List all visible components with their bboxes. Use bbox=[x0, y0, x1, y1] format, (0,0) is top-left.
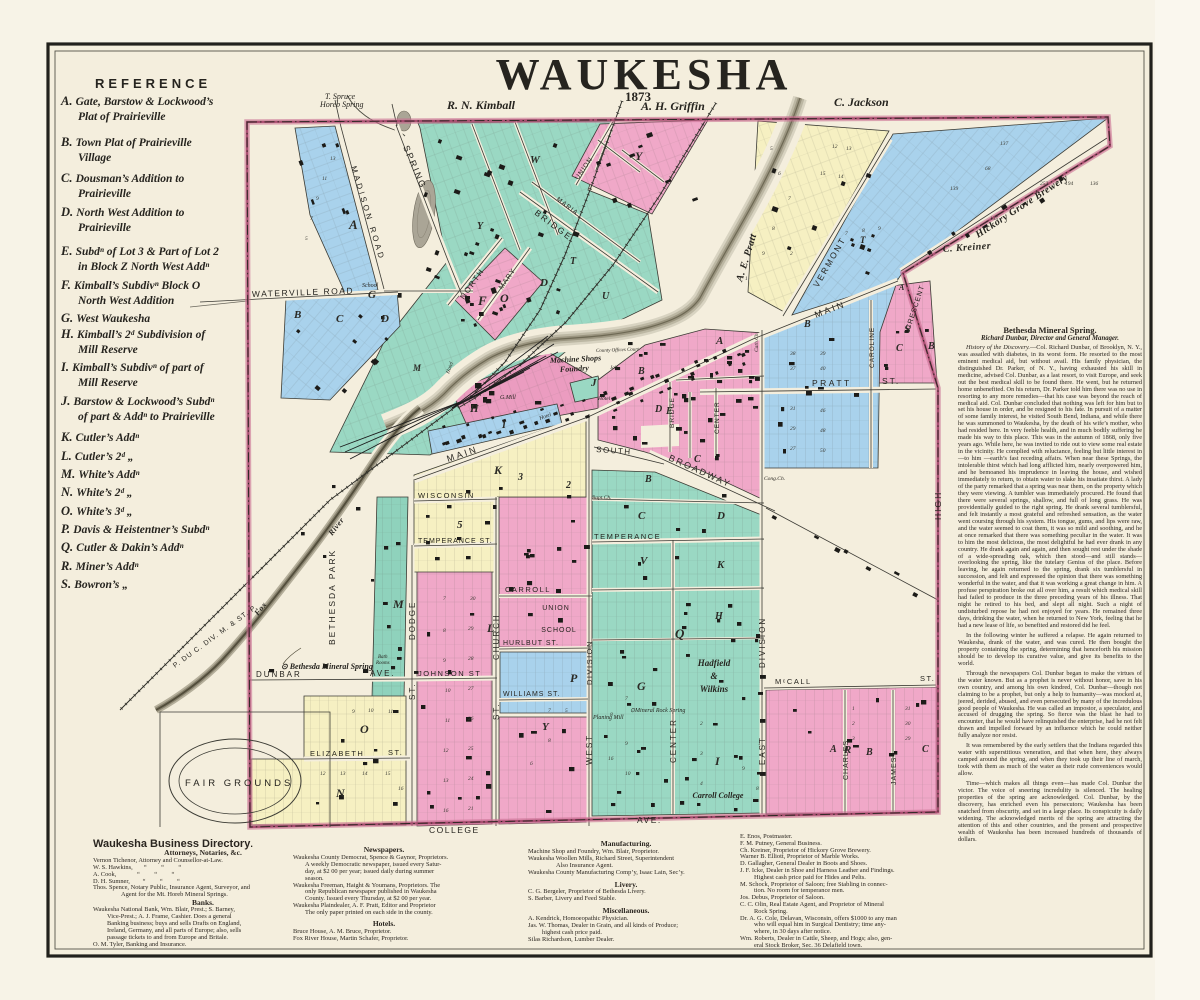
svg-text:136: 136 bbox=[1090, 181, 1099, 187]
svg-text:9: 9 bbox=[742, 766, 745, 772]
svg-text:CENTER: CENTER bbox=[714, 401, 721, 434]
svg-text:139: 139 bbox=[950, 186, 959, 192]
svg-text:25: 25 bbox=[468, 746, 474, 752]
svg-text:27: 27 bbox=[468, 686, 474, 692]
svg-text:B: B bbox=[293, 309, 301, 321]
svg-text:HIGH: HIGH bbox=[933, 491, 943, 520]
svg-text:JOHNSON ST: JOHNSON ST bbox=[418, 669, 481, 678]
svg-text:11: 11 bbox=[445, 718, 450, 724]
svg-text:Cong.Ch.: Cong.Ch. bbox=[764, 476, 785, 482]
svg-text:D: D bbox=[716, 510, 725, 522]
svg-text:T: T bbox=[860, 235, 866, 245]
svg-text:DUNBAR: DUNBAR bbox=[256, 670, 302, 679]
svg-text:⊙ Bethesda Mineral Spring: ⊙ Bethesda Mineral Spring bbox=[281, 662, 373, 671]
svg-text:3: 3 bbox=[699, 751, 703, 757]
svg-text:8: 8 bbox=[610, 712, 613, 718]
svg-text:Hadfield: Hadfield bbox=[697, 658, 731, 668]
svg-text:11: 11 bbox=[388, 709, 393, 715]
svg-text:J: J bbox=[590, 377, 597, 389]
svg-text:9: 9 bbox=[316, 196, 319, 202]
svg-text:16: 16 bbox=[608, 756, 614, 762]
svg-text:14: 14 bbox=[362, 770, 368, 777]
svg-text:A. H. Griffin: A. H. Griffin bbox=[640, 99, 705, 113]
svg-text:10: 10 bbox=[445, 688, 451, 694]
svg-text:7: 7 bbox=[788, 196, 791, 202]
svg-text:JAMES: JAMES bbox=[891, 757, 898, 785]
svg-text:Q: Q bbox=[675, 626, 685, 641]
svg-text:21: 21 bbox=[468, 806, 474, 812]
svg-text:7: 7 bbox=[548, 708, 551, 714]
svg-text:2: 2 bbox=[852, 721, 855, 727]
svg-text:S: S bbox=[904, 322, 911, 336]
svg-text:1: 1 bbox=[852, 706, 855, 712]
svg-text:D: D bbox=[380, 313, 389, 325]
svg-text:31: 31 bbox=[904, 706, 911, 712]
svg-text:FAIR GROUNDS: FAIR GROUNDS bbox=[185, 778, 293, 789]
svg-text:Carroll College: Carroll College bbox=[693, 791, 744, 800]
svg-text:68: 68 bbox=[985, 166, 991, 172]
svg-text:F: F bbox=[477, 293, 487, 308]
svg-text:1: 1 bbox=[758, 741, 761, 747]
svg-text:B: B bbox=[637, 366, 645, 377]
svg-text:Cath.Ch.: Cath.Ch. bbox=[754, 332, 760, 352]
svg-text:39: 39 bbox=[819, 351, 826, 357]
svg-text:26: 26 bbox=[468, 716, 474, 722]
svg-text:38: 38 bbox=[789, 351, 796, 357]
svg-text:PRATT: PRATT bbox=[812, 378, 852, 388]
svg-text:A: A bbox=[829, 744, 837, 755]
svg-text:CARROLL: CARROLL bbox=[505, 585, 551, 594]
svg-text:DODGE: DODGE bbox=[408, 601, 417, 640]
svg-text:K: K bbox=[493, 463, 503, 477]
svg-text:12: 12 bbox=[320, 771, 326, 777]
svg-text:H: H bbox=[469, 403, 479, 415]
svg-text:194: 194 bbox=[1065, 180, 1074, 187]
svg-text:G: G bbox=[368, 289, 376, 301]
svg-text:Bapt.Ch.: Bapt.Ch. bbox=[592, 495, 612, 501]
svg-text:Rooms: Rooms bbox=[375, 661, 390, 666]
svg-text:135: 135 bbox=[990, 216, 999, 222]
svg-text:C: C bbox=[638, 510, 646, 522]
svg-text:7: 7 bbox=[845, 231, 848, 237]
svg-text:AVE.: AVE. bbox=[637, 815, 662, 825]
svg-text:M: M bbox=[392, 597, 404, 611]
svg-text:28: 28 bbox=[468, 656, 474, 662]
svg-text:27: 27 bbox=[790, 446, 796, 452]
svg-text:G: G bbox=[637, 679, 646, 693]
svg-text:P: P bbox=[570, 671, 578, 685]
svg-text:WISCONSIN: WISCONSIN bbox=[418, 491, 475, 500]
svg-text:BETHESDA PARK: BETHESDA PARK bbox=[327, 549, 337, 645]
svg-text:137: 137 bbox=[1000, 141, 1009, 147]
svg-text:14: 14 bbox=[838, 173, 844, 180]
svg-text:R. N. Kimball: R. N. Kimball bbox=[446, 98, 516, 112]
svg-text:40: 40 bbox=[820, 365, 826, 372]
svg-text:29: 29 bbox=[468, 626, 474, 632]
svg-text:L: L bbox=[486, 621, 494, 635]
svg-text:E: E bbox=[665, 406, 673, 417]
svg-text:13: 13 bbox=[846, 146, 852, 152]
svg-text:5: 5 bbox=[770, 146, 773, 152]
svg-text:B: B bbox=[644, 474, 652, 485]
svg-text:9: 9 bbox=[878, 226, 881, 232]
svg-text:D: D bbox=[539, 277, 548, 289]
svg-text:C. Jackson: C. Jackson bbox=[834, 95, 889, 109]
svg-text:WEST: WEST bbox=[585, 734, 594, 765]
svg-text:C: C bbox=[896, 343, 903, 354]
svg-text:ST.: ST. bbox=[408, 682, 417, 700]
svg-text:&: & bbox=[710, 671, 717, 681]
svg-text:8: 8 bbox=[862, 228, 865, 234]
svg-text:1: 1 bbox=[745, 276, 748, 282]
svg-text:HURLBUT ST.: HURLBUT ST. bbox=[503, 640, 559, 647]
svg-text:ST.: ST. bbox=[920, 674, 935, 683]
svg-text:N: N bbox=[335, 786, 346, 800]
svg-text:8: 8 bbox=[772, 226, 775, 232]
svg-text:10: 10 bbox=[368, 708, 374, 714]
svg-text:3: 3 bbox=[517, 472, 523, 483]
svg-text:Bath: Bath bbox=[378, 655, 388, 660]
svg-text:31: 31 bbox=[789, 406, 796, 412]
svg-text:15: 15 bbox=[385, 771, 391, 777]
svg-text:B: B bbox=[865, 747, 873, 758]
svg-text:WILLIAMS ST.: WILLIAMS ST. bbox=[503, 691, 561, 698]
svg-text:29: 29 bbox=[905, 736, 911, 742]
svg-text:12: 12 bbox=[443, 748, 449, 754]
svg-text:ST.: ST. bbox=[882, 376, 900, 386]
svg-text:30: 30 bbox=[469, 596, 476, 602]
svg-text:5: 5 bbox=[457, 519, 463, 531]
svg-text:6: 6 bbox=[778, 171, 781, 177]
svg-text:DIVISION: DIVISION bbox=[585, 640, 594, 685]
svg-text:46: 46 bbox=[820, 407, 826, 414]
svg-text:O: O bbox=[360, 722, 369, 736]
svg-text:B: B bbox=[927, 341, 935, 352]
svg-text:K: K bbox=[716, 559, 725, 571]
svg-text:Hotel: Hotel bbox=[597, 396, 611, 402]
svg-text:10: 10 bbox=[625, 771, 631, 777]
svg-text:A: A bbox=[348, 217, 358, 232]
svg-text:48: 48 bbox=[820, 427, 826, 434]
svg-text:TEMPERANCE ST.: TEMPERANCE ST. bbox=[418, 538, 493, 545]
svg-text:2: 2 bbox=[790, 251, 793, 257]
svg-text:9: 9 bbox=[443, 658, 446, 664]
svg-text:⊙Mineral Rock Spring: ⊙Mineral Rock Spring bbox=[630, 708, 685, 714]
svg-text:UNION: UNION bbox=[542, 605, 570, 612]
svg-text:9: 9 bbox=[352, 709, 355, 715]
svg-text:CENTER: CENTER bbox=[669, 718, 678, 763]
svg-text:C: C bbox=[694, 454, 701, 465]
svg-text:Y: Y bbox=[477, 221, 484, 232]
svg-text:7: 7 bbox=[310, 216, 313, 222]
svg-text:3: 3 bbox=[851, 736, 855, 742]
svg-text:5: 5 bbox=[305, 236, 308, 242]
svg-text:16: 16 bbox=[398, 786, 404, 792]
svg-text:15: 15 bbox=[820, 171, 826, 177]
svg-text:6: 6 bbox=[530, 761, 533, 767]
svg-text:W: W bbox=[530, 154, 541, 166]
svg-text:5: 5 bbox=[565, 708, 568, 714]
svg-text:13: 13 bbox=[340, 771, 346, 777]
svg-text:9: 9 bbox=[625, 741, 628, 747]
svg-text:13: 13 bbox=[443, 778, 449, 784]
svg-text:7: 7 bbox=[443, 596, 446, 602]
svg-text:12: 12 bbox=[832, 144, 838, 150]
svg-text:T: T bbox=[570, 256, 577, 267]
svg-text:AVE.: AVE. bbox=[370, 669, 396, 678]
svg-text:A: A bbox=[898, 283, 905, 292]
svg-text:O: O bbox=[500, 291, 509, 305]
svg-text:29: 29 bbox=[790, 426, 796, 432]
svg-text:SCHOOL: SCHOOL bbox=[541, 627, 577, 634]
svg-text:COLLEGE: COLLEGE bbox=[429, 825, 480, 835]
svg-text:B: B bbox=[803, 319, 811, 330]
svg-text:H: H bbox=[714, 611, 724, 622]
svg-text:Jail: Jail bbox=[610, 366, 618, 371]
svg-text:TEMPERANCE: TEMPERANCE bbox=[594, 532, 661, 541]
svg-text:CAROLINE: CAROLINE bbox=[869, 327, 876, 368]
svg-text:8: 8 bbox=[756, 786, 759, 792]
svg-text:50: 50 bbox=[820, 448, 826, 454]
svg-text:A: A bbox=[715, 335, 723, 347]
svg-text:Planing Mill: Planing Mill bbox=[592, 715, 624, 721]
svg-text:4: 4 bbox=[700, 780, 703, 787]
svg-text:253: 253 bbox=[1040, 181, 1049, 187]
svg-text:M: M bbox=[412, 363, 422, 373]
svg-text:30: 30 bbox=[904, 721, 911, 727]
svg-text:2: 2 bbox=[700, 721, 703, 727]
svg-text:ELIZABETH: ELIZABETH bbox=[310, 749, 364, 758]
svg-text:MᶜCALL: MᶜCALL bbox=[775, 677, 812, 686]
svg-text:37: 37 bbox=[789, 366, 796, 372]
svg-text:13: 13 bbox=[330, 156, 336, 162]
svg-text:D: D bbox=[654, 404, 662, 415]
svg-text:C: C bbox=[336, 313, 344, 325]
svg-text:DIVISION: DIVISION bbox=[758, 617, 767, 668]
svg-text:7: 7 bbox=[625, 696, 628, 702]
svg-text:C: C bbox=[922, 744, 929, 755]
svg-text:ST.: ST. bbox=[388, 748, 403, 757]
svg-text:2: 2 bbox=[565, 480, 571, 491]
svg-text:8: 8 bbox=[548, 738, 551, 744]
svg-text:9: 9 bbox=[762, 251, 765, 257]
svg-text:8: 8 bbox=[443, 628, 446, 634]
svg-text:R: R bbox=[843, 744, 851, 756]
svg-text:G.Mill: G.Mill bbox=[500, 395, 516, 401]
svg-text:Foundry: Foundry bbox=[559, 363, 590, 374]
svg-text:U: U bbox=[602, 291, 610, 302]
svg-text:ST.: ST. bbox=[492, 702, 501, 720]
svg-text:11: 11 bbox=[322, 176, 327, 182]
svg-text:16: 16 bbox=[443, 808, 449, 814]
svg-text:24: 24 bbox=[468, 775, 474, 782]
svg-text:Wilkins: Wilkins bbox=[700, 684, 729, 694]
